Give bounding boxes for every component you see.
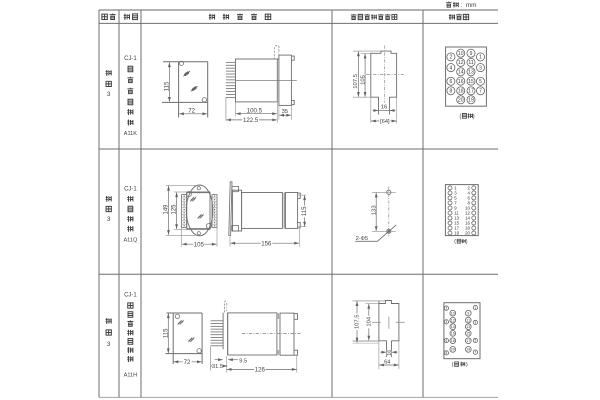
svg-text:14: 14 (451, 325, 455, 329)
svg-text:4: 4 (446, 320, 448, 324)
svg-text:115: 115 (163, 328, 169, 338)
svg-text:149: 149 (164, 204, 170, 215)
svg-text:18: 18 (458, 89, 464, 95)
svg-text:13: 13 (466, 325, 470, 329)
svg-text:4: 4 (449, 65, 452, 71)
svg-text:): ) (466, 239, 468, 245)
svg-text:107.5: 107.5 (353, 73, 359, 88)
svg-text:13: 13 (468, 70, 474, 76)
svg-text:12: 12 (451, 318, 455, 322)
svg-text:CJ-1: CJ-1 (124, 293, 137, 299)
svg-text:64: 64 (384, 360, 391, 366)
svg-text:16: 16 (451, 332, 455, 336)
svg-text:17: 17 (468, 89, 474, 95)
svg-text:20: 20 (451, 348, 455, 352)
svg-text:9: 9 (470, 51, 473, 57)
svg-text:72: 72 (188, 108, 195, 115)
svg-text:8: 8 (446, 351, 448, 355)
svg-text:125: 125 (172, 204, 178, 215)
svg-text:7: 7 (479, 89, 482, 95)
svg-text:11: 11 (466, 318, 470, 322)
svg-text:): ) (473, 114, 475, 120)
svg-text:105: 105 (194, 241, 205, 248)
svg-text:16: 16 (381, 105, 388, 111)
svg-text:12: 12 (458, 60, 464, 66)
svg-text:20: 20 (465, 230, 470, 235)
svg-text:9: 9 (467, 311, 469, 315)
svg-text:3: 3 (107, 91, 111, 98)
svg-text:9.5: 9.5 (239, 358, 247, 364)
svg-text:A11K: A11K (124, 131, 138, 137)
svg-text:7: 7 (475, 350, 477, 354)
svg-text:2-Φ5: 2-Φ5 (356, 236, 368, 242)
svg-text:15: 15 (468, 79, 474, 85)
svg-text:107.5: 107.5 (355, 315, 361, 330)
svg-text:(: ( (459, 114, 461, 120)
svg-text:19: 19 (466, 348, 470, 352)
svg-text:3: 3 (107, 216, 111, 223)
svg-text:133: 133 (372, 205, 378, 216)
svg-text:6: 6 (446, 339, 448, 343)
svg-text:2: 2 (449, 55, 452, 61)
svg-text:16: 16 (458, 79, 464, 85)
svg-text:3: 3 (475, 321, 477, 325)
svg-text:1: 1 (479, 55, 482, 61)
svg-text:35: 35 (282, 109, 288, 115)
svg-text:156: 156 (261, 240, 272, 247)
svg-text:17: 17 (466, 339, 470, 343)
svg-text:(: ( (454, 239, 456, 245)
svg-text:19: 19 (468, 98, 474, 104)
svg-text:126: 126 (255, 367, 266, 374)
svg-text:): ) (466, 362, 468, 368)
svg-text:20: 20 (458, 98, 464, 104)
svg-text:10: 10 (451, 311, 455, 315)
svg-text:3: 3 (107, 341, 111, 348)
svg-text:19: 19 (454, 230, 459, 235)
svg-text:A11H: A11H (124, 373, 138, 379)
svg-text:5: 5 (479, 79, 482, 85)
svg-text:2: 2 (446, 306, 448, 310)
svg-text:11: 11 (468, 60, 473, 66)
svg-text:5: 5 (475, 339, 477, 343)
svg-text:104: 104 (367, 316, 373, 326)
svg-text:105: 105 (360, 74, 366, 85)
svg-text:14: 14 (458, 70, 464, 76)
svg-text:15: 15 (466, 332, 470, 336)
svg-text:16: 16 (387, 350, 393, 356)
svg-text:72: 72 (184, 359, 191, 366)
svg-text:10: 10 (458, 51, 464, 57)
svg-text:115: 115 (302, 206, 308, 216)
svg-text:[64]: [64] (380, 119, 390, 125)
svg-text:6: 6 (449, 79, 452, 85)
svg-text:(: ( (452, 362, 454, 368)
svg-text:122.5: 122.5 (243, 117, 259, 124)
svg-text:18: 18 (451, 339, 455, 343)
svg-text:CJ-1: CJ-1 (124, 187, 137, 193)
svg-text:3: 3 (479, 65, 482, 71)
svg-text:1: 1 (475, 306, 477, 310)
svg-text::: : (461, 2, 463, 9)
svg-text:A11Q: A11Q (123, 238, 138, 244)
svg-text:100.5: 100.5 (247, 108, 263, 115)
svg-text:CJ-1: CJ-1 (124, 56, 137, 62)
svg-text:31.5: 31.5 (212, 364, 223, 370)
svg-text:115: 115 (163, 81, 170, 91)
svg-text:mm: mm (466, 2, 477, 9)
svg-text:8: 8 (449, 89, 452, 95)
